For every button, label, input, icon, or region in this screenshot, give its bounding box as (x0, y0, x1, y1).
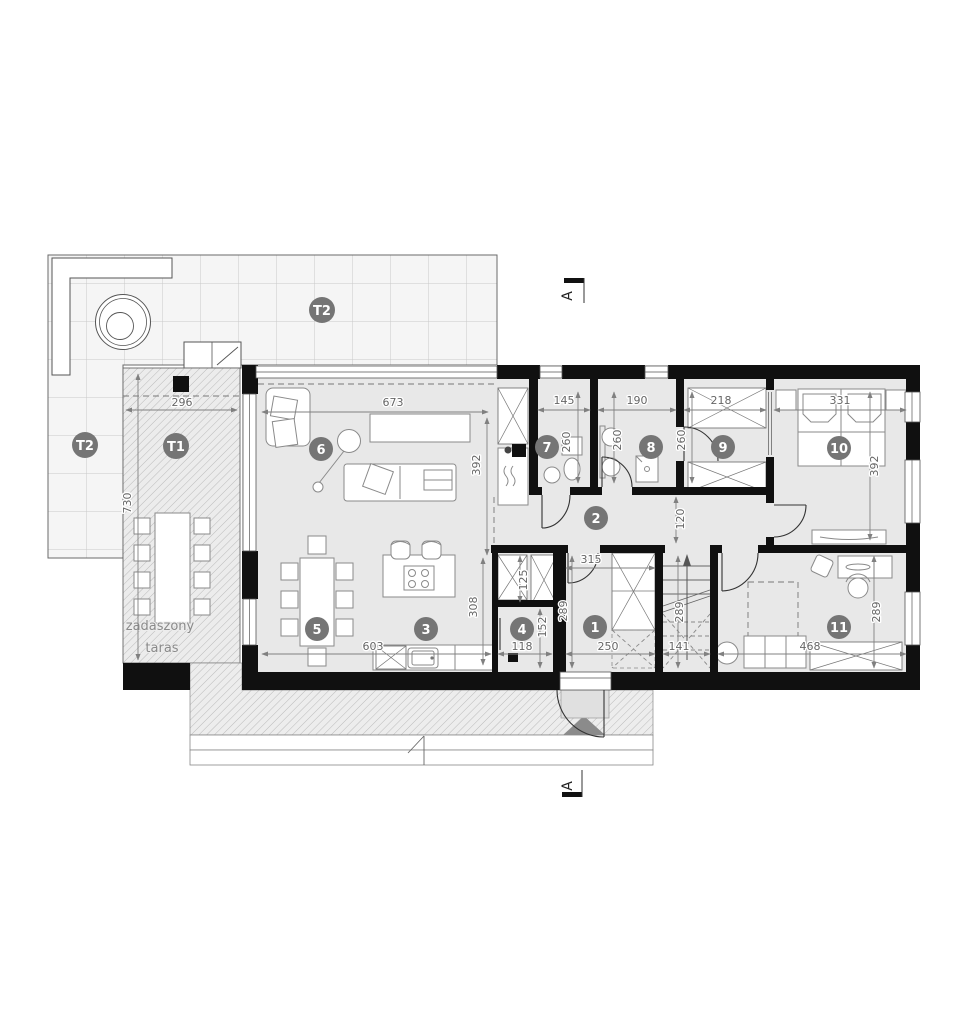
dim-t1-width: 296 (172, 396, 193, 409)
dim-office-depth: 289 (870, 602, 883, 623)
wc-sink (544, 467, 560, 483)
dim-kitchen-depth: 308 (467, 597, 480, 618)
badge-room-7: 7 (535, 435, 559, 459)
kitchen-island (383, 555, 455, 597)
dim-bedroom-depth: 392 (868, 456, 881, 477)
dim-pantry-width: 118 (512, 640, 533, 653)
dim-wardrobe-depth: 260 (675, 430, 688, 451)
dim-bedroom-width: 331 (830, 394, 851, 407)
svg-text:3: 3 (421, 623, 430, 638)
dim-hall-width: 315 (581, 553, 602, 566)
svg-text:8: 8 (646, 441, 655, 456)
badge-room-9: 9 (711, 435, 735, 459)
section-letter: A (560, 781, 576, 791)
badge-terrace-t2: T2 (309, 297, 335, 323)
dim-hall-width-lower: 250 (598, 640, 619, 653)
badge-room-11: 11 (827, 615, 851, 639)
badge-room-6: 6 (309, 437, 333, 461)
badge-room-3: 3 (414, 617, 438, 641)
dim-wardrobe-width: 218 (711, 394, 732, 407)
svg-text:2: 2 (591, 512, 600, 527)
sofa (744, 636, 806, 668)
dim-living-width: 673 (383, 396, 404, 409)
svg-text:T1: T1 (167, 440, 185, 455)
badge-terrace-t1: T1 (163, 433, 189, 459)
dim-wc-width: 145 (554, 394, 575, 407)
section-letter: A (560, 291, 576, 301)
wardrobe (810, 642, 902, 670)
badge-room-1: 1 (583, 615, 607, 639)
flue (512, 444, 526, 457)
dim-closet-depth: 125 (517, 570, 530, 591)
floor-plan-page: zadaszony taras (0, 0, 956, 1014)
step (190, 750, 653, 765)
section-marker-bottom: A (560, 770, 582, 797)
sofa (344, 464, 456, 501)
dim-stairs-width: 141 (669, 640, 690, 653)
badge-room-10: 10 (827, 436, 851, 460)
dim-stairs-depth: 289 (673, 602, 686, 623)
terrace-t1: zadaszony taras (123, 368, 240, 663)
svg-text:T2: T2 (76, 439, 94, 454)
svg-text:11: 11 (830, 621, 848, 636)
badge-terrace-t2: T2 (72, 432, 98, 458)
svg-text:9: 9 (718, 441, 727, 456)
dim-pantry-depth: 152 (536, 617, 549, 638)
svg-text:5: 5 (312, 623, 321, 638)
svg-text:10: 10 (830, 442, 848, 457)
badge-room-2: 2 (584, 506, 608, 530)
svg-text:1: 1 (590, 621, 599, 636)
dim-hall-depth: 289 (557, 601, 570, 622)
dim-bath-width: 190 (627, 394, 648, 407)
nightstand (776, 390, 796, 410)
svg-text:T2: T2 (313, 304, 331, 319)
badge-room-8: 8 (639, 435, 663, 459)
dim-living-depth: 392 (470, 455, 483, 476)
terrace-caption-line1: zadaszony (126, 619, 195, 634)
kitchen-counter (373, 645, 493, 670)
svg-text:4: 4 (517, 623, 526, 638)
step (190, 735, 653, 750)
svg-text:7: 7 (542, 441, 551, 456)
svg-text:6: 6 (316, 443, 325, 458)
kitchen-sink (408, 648, 438, 668)
column (173, 376, 189, 392)
entrance-doorway (560, 672, 611, 690)
badge-room-4: 4 (510, 617, 534, 641)
shower (636, 456, 658, 482)
dresser (812, 530, 886, 544)
tv-console (370, 414, 470, 442)
terrace-caption-line2: taras (145, 641, 178, 656)
section-marker-top: A (560, 278, 584, 303)
terrace-step (184, 342, 241, 368)
side-table (716, 642, 738, 664)
dim-t1-depth: 730 (121, 493, 134, 514)
dim-office-width: 468 (800, 640, 821, 653)
dim-kitchen-width: 603 (363, 640, 384, 653)
window-glazed-wall (256, 366, 497, 378)
hot-tub (96, 295, 151, 350)
entrance-pad (561, 690, 609, 718)
dim-bath-depth: 260 (611, 430, 624, 451)
dim-corridor-width: 120 (674, 509, 687, 530)
window-terrace-door (243, 394, 256, 645)
nightstand (886, 390, 906, 410)
dim-wc-depth: 260 (560, 432, 573, 453)
floor-plan-drawing: zadaszony taras (0, 0, 956, 1014)
badge-room-5: 5 (305, 617, 329, 641)
